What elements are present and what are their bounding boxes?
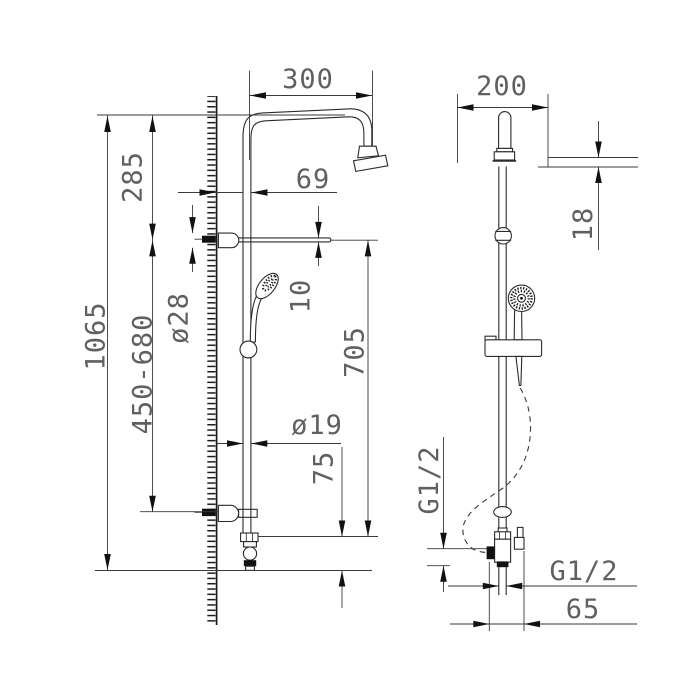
valve-union [243,547,256,560]
dim-label-slide-range: 450-680 [128,314,159,435]
lower-wall-anchor [202,509,216,516]
arrowhead [149,224,156,240]
side-head-capsule [499,112,511,149]
side-valve-dark-band [497,561,509,567]
arrowhead [440,533,447,549]
side-hand-shower-grip-upper [514,309,522,339]
arrowhead [315,222,322,238]
arrowhead [532,104,548,111]
upper-wall-anchor [202,236,216,243]
arrowhead [315,242,322,258]
arrowhead [250,92,266,99]
dim-label-bracket-to-outlet: 705 [340,326,371,378]
arrowhead [524,621,540,628]
upper-wall-bracket [218,233,238,248]
arrowhead [104,116,111,132]
arrowhead [440,566,447,582]
wall-hatching [207,96,216,625]
front-view: 300 285 69 ø28 10 1065 450-680 ø19 705 7… [81,64,388,625]
overhead-shower-neck [358,146,379,158]
valve-base [246,566,255,570]
dim-label-outlet-thread: G1/2 [549,556,618,587]
dim-label-head-thickness: 18 [568,207,599,242]
dim-label-bracket-diameter: ø28 [164,292,195,344]
arrowhead [595,167,602,183]
ball-joint [495,228,511,244]
arrowhead [506,583,522,590]
side-view: 200 18 G1/2 G1/2 65 [414,71,638,631]
side-valve-nut [495,532,511,539]
side-outlet-block [514,537,524,549]
valve-neck [244,542,257,547]
side-valve-body [495,539,511,562]
arrowhead [339,571,346,587]
dim-label-top-to-bracket: 285 [118,151,149,203]
side-valve-handle [487,546,495,559]
arrowhead [149,240,156,256]
arrowhead [595,142,602,158]
hand-shower-handle [250,295,261,343]
dim-label-outlet-height: 75 [309,451,340,486]
arrowhead [252,189,268,196]
drawing-canvas: 300 285 69 ø28 10 1065 450-680 ø19 705 7… [0,0,700,700]
pipe-collar [494,507,512,518]
arrowhead [189,248,196,264]
dim-label-total-height: 1065 [81,301,112,370]
spray-face-center-dot [520,297,523,300]
arrowhead [483,583,499,590]
valve-top-nut [241,533,258,542]
dim-label-arm-reach: 300 [282,64,334,95]
dim-label-outlet-offset: 65 [566,594,601,625]
side-hand-shower-grip-lower [516,356,522,385]
arrowhead [227,440,243,447]
valve-dark-band [244,560,256,566]
arrowhead [149,116,156,132]
arrowhead [365,521,372,537]
side-head-cap [494,152,514,160]
slider-knob [240,341,257,358]
lower-bracket-stub [239,509,258,517]
dim-label-inlet-thread: G1/2 [414,445,445,514]
arrowhead [458,104,474,111]
arrowhead [365,240,372,256]
arrowhead [339,521,346,537]
dim-label-shelf-thickness: 10 [286,279,317,314]
slider-holder [485,340,542,357]
dim-label-head-width: 200 [476,71,528,102]
technical-drawing-shower-column: 300 285 69 ø28 10 1065 450-680 ø19 705 7… [0,0,700,700]
arrowhead [104,554,111,570]
side-outlet-stub [517,527,523,537]
arrowhead [356,92,372,99]
lower-wall-bracket [218,505,238,521]
arrowhead [149,496,156,512]
arrowhead [251,440,267,447]
dim-label-wall-to-pipe: 69 [296,164,331,195]
arrowhead [473,621,489,628]
dim-label-pipe-diameter: ø19 [291,410,343,441]
arrowhead [189,217,196,233]
